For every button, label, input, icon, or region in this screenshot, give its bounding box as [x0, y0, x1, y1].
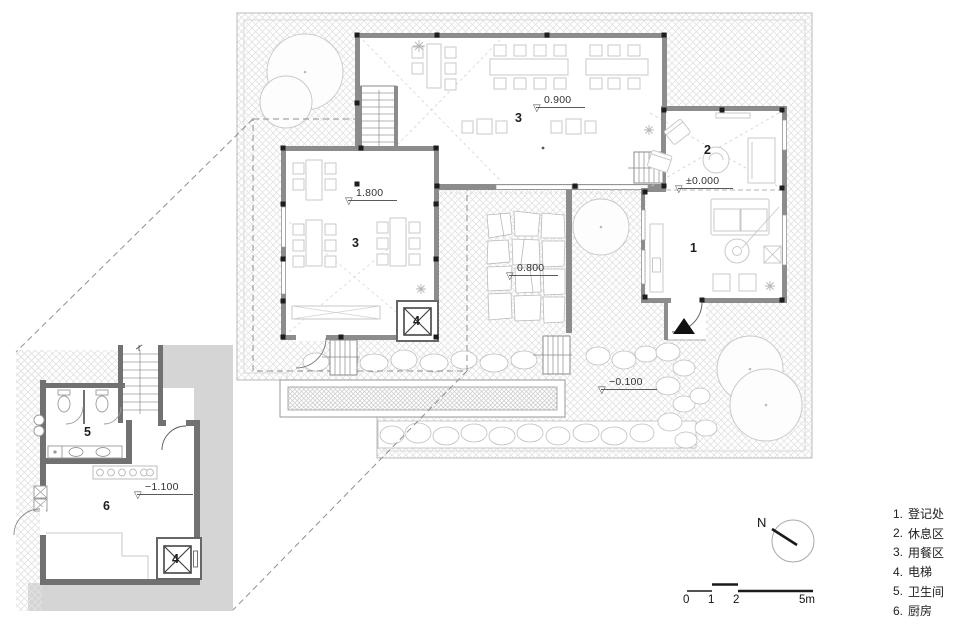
scale-tick-1: 1 [708, 595, 714, 607]
legend: 1. 登记处 2. 休息区 3. 用餐区 4. 电梯 5. 卫生间 6. 厨房 [893, 504, 944, 620]
legend-label: 用餐区 [908, 544, 944, 561]
legend-label: 休息区 [908, 525, 944, 542]
level-marker-zero: ±0.000▽ [678, 176, 733, 189]
floor-plan: 3 2 1 3 4 5 6 4 0.900▽ ±0.000▽ 1.800▽ 0.… [0, 0, 960, 625]
room-label-toilet: 5 [84, 426, 91, 439]
courtyard-wall [566, 190, 572, 333]
legend-num: 4. [893, 565, 903, 579]
legend-item-lounge: 2. 休息区 [893, 523, 944, 542]
left-building [281, 146, 439, 368]
floor-plan-canvas [0, 0, 960, 625]
legend-item-registration: 1. 登记处 [893, 504, 944, 523]
legend-item-elevator: 4. 电梯 [893, 562, 944, 581]
level-marker-left-dining: 1.800▽ [348, 188, 397, 201]
level-marker-courtyard: 0.800▽ [509, 263, 558, 276]
inset-detail [14, 345, 233, 611]
legend-num: 1. [893, 507, 903, 521]
legend-label: 电梯 [908, 563, 932, 580]
legend-num: 3. [893, 545, 903, 559]
legend-label: 厨房 [908, 602, 932, 619]
room-label-elevator-main: 4 [413, 315, 420, 328]
legend-num: 5. [893, 584, 903, 598]
scale-bar [687, 585, 813, 592]
stair-main [358, 86, 398, 150]
level-marker-top-dining: 0.900▽ [536, 95, 585, 108]
legend-num: 6. [893, 604, 903, 618]
scale-tick-2: 2 [733, 595, 739, 607]
scale-tick-5m: 5m [799, 595, 815, 607]
room-label-dining-left: 3 [352, 237, 359, 250]
legend-item-kitchen: 6. 厨房 [893, 601, 944, 620]
room-label-lounge: 2 [704, 144, 711, 157]
scale-tick-0: 0 [683, 595, 689, 607]
legend-label: 卫生间 [908, 583, 944, 600]
terrace-strip [280, 380, 565, 417]
legend-num: 2. [893, 526, 903, 540]
room-label-elevator-inset: 4 [172, 553, 179, 566]
room-label-dining-top: 3 [515, 112, 522, 125]
legend-label: 登记处 [908, 505, 944, 522]
elevator-inset [157, 538, 201, 579]
room-label-registration: 1 [690, 242, 697, 255]
north-label: N [757, 515, 766, 530]
legend-item-toilet: 5. 卫生间 [893, 582, 944, 601]
north-arrow-icon [772, 520, 814, 562]
level-marker-garden: −0.100▽ [601, 377, 657, 390]
legend-item-dining: 3. 用餐区 [893, 543, 944, 562]
level-marker-kitchen: −1.100▽ [137, 482, 193, 495]
room-label-kitchen: 6 [103, 500, 110, 513]
